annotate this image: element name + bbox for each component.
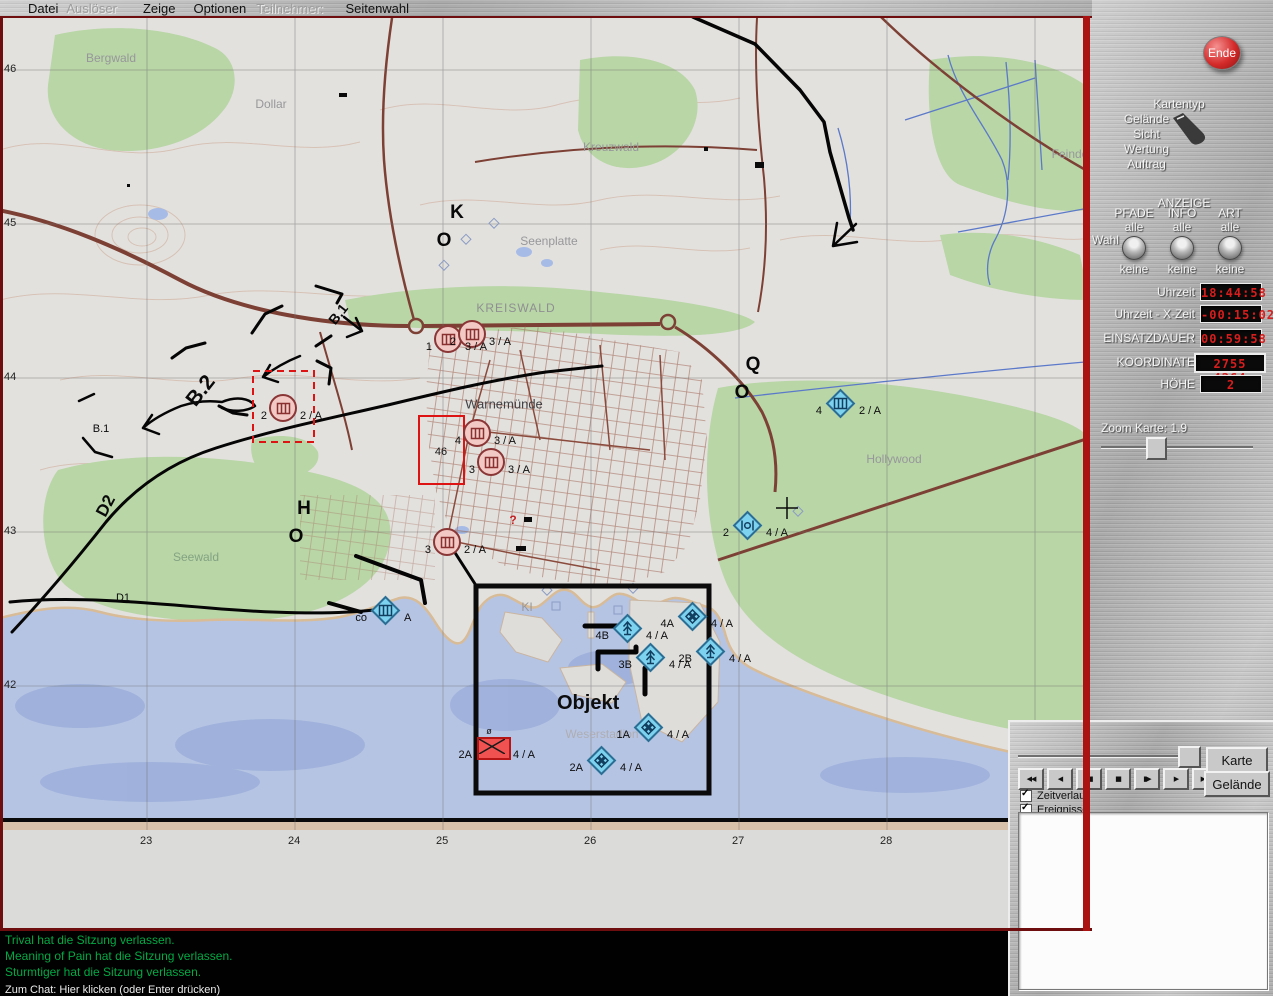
anzeige-option-keine[interactable]: keine xyxy=(1157,262,1207,276)
playback-panel: ◀◀◀◀▮■▮▶▶▶▶ ZeitverlaufEreignisse KarteG… xyxy=(1008,720,1273,996)
zoom-karte-label: Zoom Karte: 1.9 xyxy=(1101,421,1187,435)
unit-designation: 4 / A xyxy=(513,749,535,761)
readout-label-koordinate: KOORDINATE xyxy=(1117,355,1195,369)
unit-number: 4A xyxy=(644,618,674,630)
anzeige-option-alle[interactable]: alle xyxy=(1109,220,1159,234)
zoom-slider-handle[interactable] xyxy=(1146,437,1167,460)
ende-button[interactable]: Ende xyxy=(1203,36,1241,70)
readout-value-h-he: 2 xyxy=(1200,375,1262,393)
map-frame-top xyxy=(0,16,1092,18)
readout-label-uhrzeit-x-zeit: Uhrzeit - X-Zeit xyxy=(1114,307,1195,321)
unit-number: 3 xyxy=(445,464,475,476)
unit-circle-3[interactable] xyxy=(477,448,505,476)
ladder-icon xyxy=(469,425,486,442)
unit-designation: 4 / A xyxy=(646,630,668,642)
unit-number: 2B xyxy=(662,653,692,665)
unit-diamond-4B[interactable] xyxy=(616,617,639,640)
kartentyp-option-gel-nde[interactable]: Gelände xyxy=(1089,112,1232,126)
anzeige-col-art: ARTallekeine xyxy=(1205,206,1255,276)
readout-label-h-he: HÖHE xyxy=(1160,377,1195,391)
unit-number: 2 xyxy=(426,336,456,348)
unit-number: co xyxy=(337,612,367,624)
checkbox-zeitverlauf[interactable] xyxy=(1020,790,1032,802)
timeline-slider-track[interactable] xyxy=(1018,755,1194,758)
playback-buttons: ◀◀◀◀▮■▮▶▶▶▶ xyxy=(1018,768,1218,790)
unit-number: 3B xyxy=(602,659,632,671)
anchor-icon xyxy=(642,649,659,666)
cbars-icon xyxy=(739,517,756,534)
unit-number: 3 xyxy=(401,544,431,556)
unit-diamond-4[interactable] xyxy=(829,392,852,415)
map-viewport[interactable]: BergwaldDollarKreuzwaldSeenplatteKREISWA… xyxy=(0,0,1089,996)
karte-button[interactable]: Karte xyxy=(1206,747,1268,773)
unit-designation: 2 / A xyxy=(464,544,486,556)
readout-value-uhrzeit-x-zeit: -00:15:02 xyxy=(1200,305,1262,323)
step-forward-button[interactable]: ▮▶ xyxy=(1134,768,1160,790)
anchor-icon xyxy=(619,620,636,637)
unit-diamond-1A[interactable] xyxy=(637,716,660,739)
chat-message-1: Meaning of Pain hat die Sitzung verlasse… xyxy=(5,949,1008,963)
unit-diamond-3B[interactable] xyxy=(639,646,662,669)
anzeige-col-title: INFO xyxy=(1157,206,1207,220)
unit-designation: 3 / A xyxy=(489,336,511,348)
ladder-icon xyxy=(439,534,456,551)
readout-value-koordinate: 2755 4264 xyxy=(1194,353,1266,373)
kartentyp-option-auftrag[interactable]: Auftrag xyxy=(1089,157,1230,171)
anzeige-col-title: ART xyxy=(1205,206,1255,220)
unit-designation: 3 / A xyxy=(465,341,487,353)
unit-circle-4[interactable] xyxy=(463,419,491,447)
map-frame-left xyxy=(0,16,3,931)
anzeige-knob-art[interactable] xyxy=(1218,236,1242,260)
ladder-icon xyxy=(275,400,292,417)
ladder-icon xyxy=(377,602,394,619)
enemy-x-icon xyxy=(479,739,505,754)
play-button[interactable]: ▶ xyxy=(1163,768,1189,790)
anzeige-knob-info[interactable] xyxy=(1170,236,1194,260)
map-frame-bottom xyxy=(0,928,1092,931)
chat-message-2: Sturmtiger hat die Sitzung verlassen. xyxy=(5,965,1008,979)
timeline-slider-handle[interactable] xyxy=(1178,746,1201,768)
unit-designation: A xyxy=(404,612,411,624)
anzeige-col-pfade: PFADEallekeine xyxy=(1109,206,1159,276)
menu-item-teilnehmer[interactable]: Teilnehmer: xyxy=(256,1,323,16)
quad-icon xyxy=(593,752,610,769)
chat-log: Trival hat die Sitzung verlassen.Meaning… xyxy=(0,931,1008,984)
unit-number: 4B xyxy=(579,630,609,642)
unit-designation: 2 / A xyxy=(300,410,322,422)
ladder-icon xyxy=(832,395,849,412)
unit-diamond-2[interactable] xyxy=(736,514,759,537)
anzeige-option-alle[interactable]: alle xyxy=(1205,220,1255,234)
checkbox-row-zeitverlauf: Zeitverlauf xyxy=(1020,790,1088,802)
menu-bar: DateiAuslöserZeigeOptionenTeilnehmer:Sei… xyxy=(0,0,1092,16)
checkbox-label-zeitverlauf: Zeitverlauf xyxy=(1037,790,1088,802)
simulation-app: BergwaldDollarKreuzwaldSeenplatteKREISWA… xyxy=(0,0,1273,996)
zoom-slider-track[interactable] xyxy=(1101,446,1253,449)
menu-item-optionen[interactable]: Optionen xyxy=(193,1,246,16)
unit-designation: 2 / A xyxy=(859,405,881,417)
unit-designation: 4 / A xyxy=(667,729,689,741)
readout-label-einsatzdauer: EINSATZDAUER xyxy=(1103,331,1195,345)
quad-icon xyxy=(640,719,657,736)
menu-item-ausl-ser[interactable]: Auslöser xyxy=(66,1,117,16)
anzeige-option-keine[interactable]: keine xyxy=(1205,262,1255,276)
chat-prompt-bar[interactable]: Zum Chat: Hier klicken (oder Enter drück… xyxy=(0,984,1013,996)
kartentyp-option-sicht[interactable]: Sicht xyxy=(1089,127,1238,141)
anzeige-option-keine[interactable]: keine xyxy=(1109,262,1159,276)
anchor-icon xyxy=(702,643,719,660)
unit-enemy-2A[interactable] xyxy=(477,737,511,760)
map-frame-right xyxy=(1083,16,1090,931)
quad-icon xyxy=(684,608,701,625)
ladder-icon xyxy=(464,326,481,343)
anzeige-col-info: INFOallekeine xyxy=(1157,206,1207,276)
events-listbox[interactable] xyxy=(1018,812,1268,990)
unit-designation: 4 / A xyxy=(711,618,733,630)
unit-number: 1A xyxy=(600,729,630,741)
gel-nde-button[interactable]: Gelände xyxy=(1204,771,1270,797)
unit-number: 2A xyxy=(442,749,472,761)
unit-number: 2 xyxy=(699,527,729,539)
anzeige-col-title: PFADE xyxy=(1109,206,1159,220)
menu-item-seitenwahl[interactable]: Seitenwahl xyxy=(345,1,409,16)
unit-designation: 4 / A xyxy=(620,762,642,774)
menu-item-zeige[interactable]: Zeige xyxy=(143,1,176,16)
unit-number: 4 xyxy=(431,435,461,447)
play-reverse-button[interactable]: ◀ xyxy=(1047,768,1073,790)
unit-diamond-co[interactable] xyxy=(374,599,397,622)
kartentyp-option-wertung[interactable]: Wertung xyxy=(1089,142,1252,156)
readout-value-einsatzdauer: 00:59:58 xyxy=(1200,329,1262,347)
unit-number: 2A xyxy=(553,762,583,774)
ladder-icon xyxy=(483,454,500,471)
unit-diamond-2B[interactable] xyxy=(699,640,722,663)
readout-value-uhrzeit: 18:44:58 xyxy=(1200,283,1262,301)
unit-diamond-4A[interactable] xyxy=(681,605,704,628)
unit-designation: 4 / A xyxy=(766,527,788,539)
rewind-button[interactable]: ◀◀ xyxy=(1018,768,1044,790)
anzeige-option-alle[interactable]: alle xyxy=(1157,220,1207,234)
unit-number: 4 xyxy=(792,405,822,417)
unit-diamond-2A[interactable] xyxy=(590,749,613,772)
kartentyp-title: Kartentyp xyxy=(1119,97,1239,111)
unit-circle-2[interactable] xyxy=(269,394,297,422)
unit-circle-3[interactable] xyxy=(433,528,461,556)
anzeige-knob-pfade[interactable] xyxy=(1122,236,1146,260)
chat-message-0: Trival hat die Sitzung verlassen. xyxy=(5,933,1008,947)
stop-button[interactable]: ■ xyxy=(1105,768,1131,790)
unit-number: 2 xyxy=(237,410,267,422)
readout-label-uhrzeit: Uhrzeit xyxy=(1157,285,1195,299)
menu-item-datei[interactable]: Datei xyxy=(28,1,58,16)
unit-designation: 4 / A xyxy=(729,653,751,665)
unit-designation: 3 / A xyxy=(508,464,530,476)
map-unit-layer: 13 / A23 / A22 / A43 / A33 / A32 / A42 /… xyxy=(0,0,1089,930)
unit-designation: 3 / A xyxy=(494,435,516,447)
